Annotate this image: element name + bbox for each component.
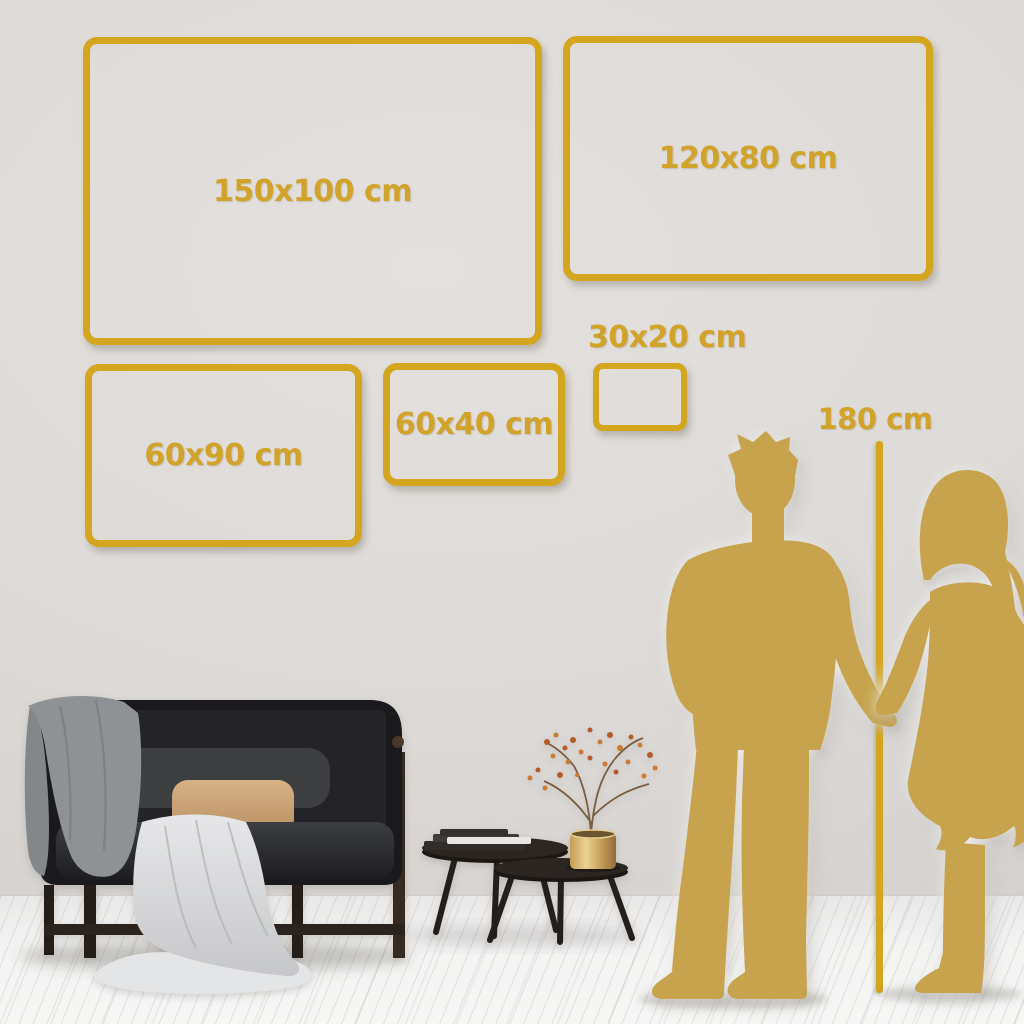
size-label-150x100: 150x100 cm: [213, 174, 412, 209]
size-frame-120x80: 120x80 cm: [563, 36, 933, 281]
size-label-30x20: 30x20 cm: [588, 320, 746, 355]
height-marker-label: 180 cm: [795, 402, 955, 436]
size-frame-60x40: 60x40 cm: [383, 363, 565, 486]
canvas-size-guide-scene: 150x100 cm 120x80 cm 60x90 cm 60x40 cm 3…: [0, 0, 1024, 1024]
size-frame-60x90: 60x90 cm: [85, 364, 362, 547]
size-frame-150x100: 150x100 cm: [83, 37, 542, 345]
size-frame-30x20: [593, 363, 687, 431]
wood-floor: [0, 895, 1024, 1024]
size-label-60x90: 60x90 cm: [144, 438, 302, 473]
size-label-120x80: 120x80 cm: [659, 141, 838, 176]
size-label-60x40: 60x40 cm: [395, 407, 553, 442]
height-ruler-line: [876, 441, 883, 993]
